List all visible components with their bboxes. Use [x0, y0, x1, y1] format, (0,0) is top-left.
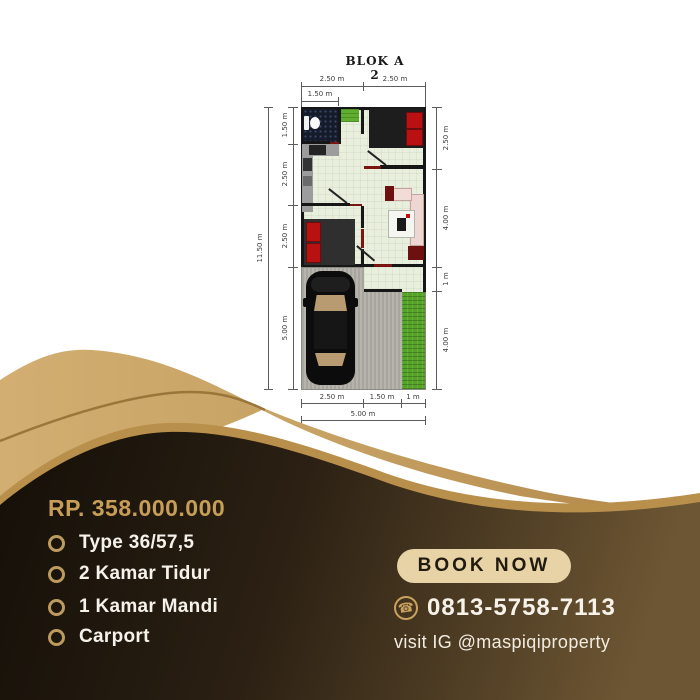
toilet-icon — [304, 116, 309, 130]
dim-tick — [432, 267, 442, 268]
dim-tick — [288, 107, 298, 108]
dim-left-3: 2.50 m — [281, 224, 289, 249]
dim-line-left — [293, 107, 294, 390]
dim-tick — [363, 399, 364, 408]
feature-label-bathrooms: 1 Kamar Mandi — [79, 596, 218, 618]
bed-icon-bedroom2 — [304, 219, 355, 265]
dim-left-outer: 11.50 m — [256, 233, 264, 262]
bullet-ring-icon — [48, 599, 65, 616]
wall-terrace-bottom — [364, 289, 402, 292]
wall-bathroom-bottom — [302, 141, 331, 144]
phone-icon: ☎ — [392, 594, 419, 621]
dim-tick — [425, 82, 426, 107]
fridge-icon — [303, 158, 312, 171]
dim-tick — [338, 97, 339, 106]
dim-tick — [432, 107, 442, 108]
planter-icon — [341, 109, 359, 122]
dim-right-1: 2.50 m — [442, 126, 450, 151]
dim-right-3: 1 m — [442, 272, 450, 286]
feature-row: Carport — [48, 626, 150, 648]
wall-bedroom2-right-a — [361, 206, 364, 228]
dim-tick — [432, 169, 442, 170]
dim-tick — [288, 205, 298, 206]
dim-tick — [264, 107, 273, 108]
dim-bottom-2: 1.50 m — [370, 393, 395, 401]
wall-terrace-right — [423, 267, 426, 292]
bullet-ring-icon — [48, 535, 65, 552]
dim-left-2: 2.50 m — [281, 162, 289, 187]
grass-strip-icon — [402, 292, 425, 389]
dim-tick — [288, 389, 298, 390]
bed-icon-bedroom1 — [369, 108, 424, 148]
door-hall — [361, 229, 364, 248]
dim-line-top-sub — [301, 101, 338, 102]
bullet-ring-icon — [48, 629, 65, 646]
phone-number: 0813-5758-7113 — [427, 594, 616, 622]
book-now-button[interactable]: BOOK NOW — [397, 549, 571, 583]
dim-tick — [425, 416, 426, 425]
door-bathroom — [330, 142, 339, 144]
car-icon — [306, 271, 355, 385]
bullet-ring-icon — [48, 566, 65, 583]
feature-row: 2 Kamar Tidur — [48, 563, 210, 585]
instagram-handle[interactable]: visit IG @maspiqiproperty — [394, 632, 610, 653]
flyer-page: BLOK A 2 2.50 m 2.50 m 1.50 m — [0, 0, 700, 700]
dim-bottom-1: 2.50 m — [320, 393, 345, 401]
door-bedroom1 — [364, 166, 381, 169]
dim-tick — [288, 267, 298, 268]
dim-left-1: 1.50 m — [281, 113, 289, 138]
sink-icon — [303, 176, 312, 186]
toilet-bowl-icon — [310, 117, 320, 129]
sofa-cushion-icon — [385, 186, 394, 201]
feature-label-bedrooms: 2 Kamar Tidur — [79, 563, 210, 585]
dim-bottom-total: 5.00 m — [351, 410, 376, 418]
dim-right-4: 4.00 m — [442, 328, 450, 353]
dim-tick — [432, 291, 442, 292]
dim-top-right: 2.50 m — [383, 75, 408, 83]
phone-contact[interactable]: ☎ 0813-5758-7113 — [394, 594, 616, 622]
dim-line-right — [436, 107, 437, 390]
dim-left-4: 5.00 m — [281, 316, 289, 341]
feature-label-type: Type 36/57,5 — [79, 532, 194, 554]
stove-icon — [309, 145, 326, 155]
dim-tick — [301, 82, 302, 107]
wall-bedroom1-left — [361, 108, 364, 134]
wall-bedroom1-bottom — [380, 165, 426, 169]
wall-bathroom-right — [338, 108, 341, 144]
coffee-table-icon — [388, 210, 415, 238]
price-text: RP. 358.000.000 — [48, 495, 225, 522]
book-now-label: BOOK NOW — [418, 555, 551, 577]
dim-line-left-outer — [268, 107, 269, 390]
dim-tick — [288, 144, 298, 145]
dim-tick — [264, 389, 273, 390]
feature-row: Type 36/57,5 — [48, 532, 194, 554]
dim-top-left: 2.50 m — [320, 75, 345, 83]
dim-right-2: 4.00 m — [442, 206, 450, 231]
dim-top-sub: 1.50 m — [308, 90, 333, 98]
feature-row: 1 Kamar Mandi — [48, 596, 218, 618]
dim-tick — [425, 399, 426, 408]
feature-label-carport: Carport — [79, 626, 150, 648]
dim-tick — [301, 399, 302, 408]
dim-tick — [301, 416, 302, 425]
dim-tick — [363, 82, 364, 91]
door-entrance — [374, 264, 392, 267]
sofa-cushion2-icon — [408, 246, 424, 260]
dim-line-bottom-total — [301, 420, 426, 421]
wall-bedroom2-top — [302, 203, 350, 206]
sofa-corner-icon — [392, 188, 412, 201]
dim-bottom-3: 1 m — [406, 393, 420, 401]
dim-tick — [401, 399, 402, 408]
dim-tick — [432, 389, 442, 390]
